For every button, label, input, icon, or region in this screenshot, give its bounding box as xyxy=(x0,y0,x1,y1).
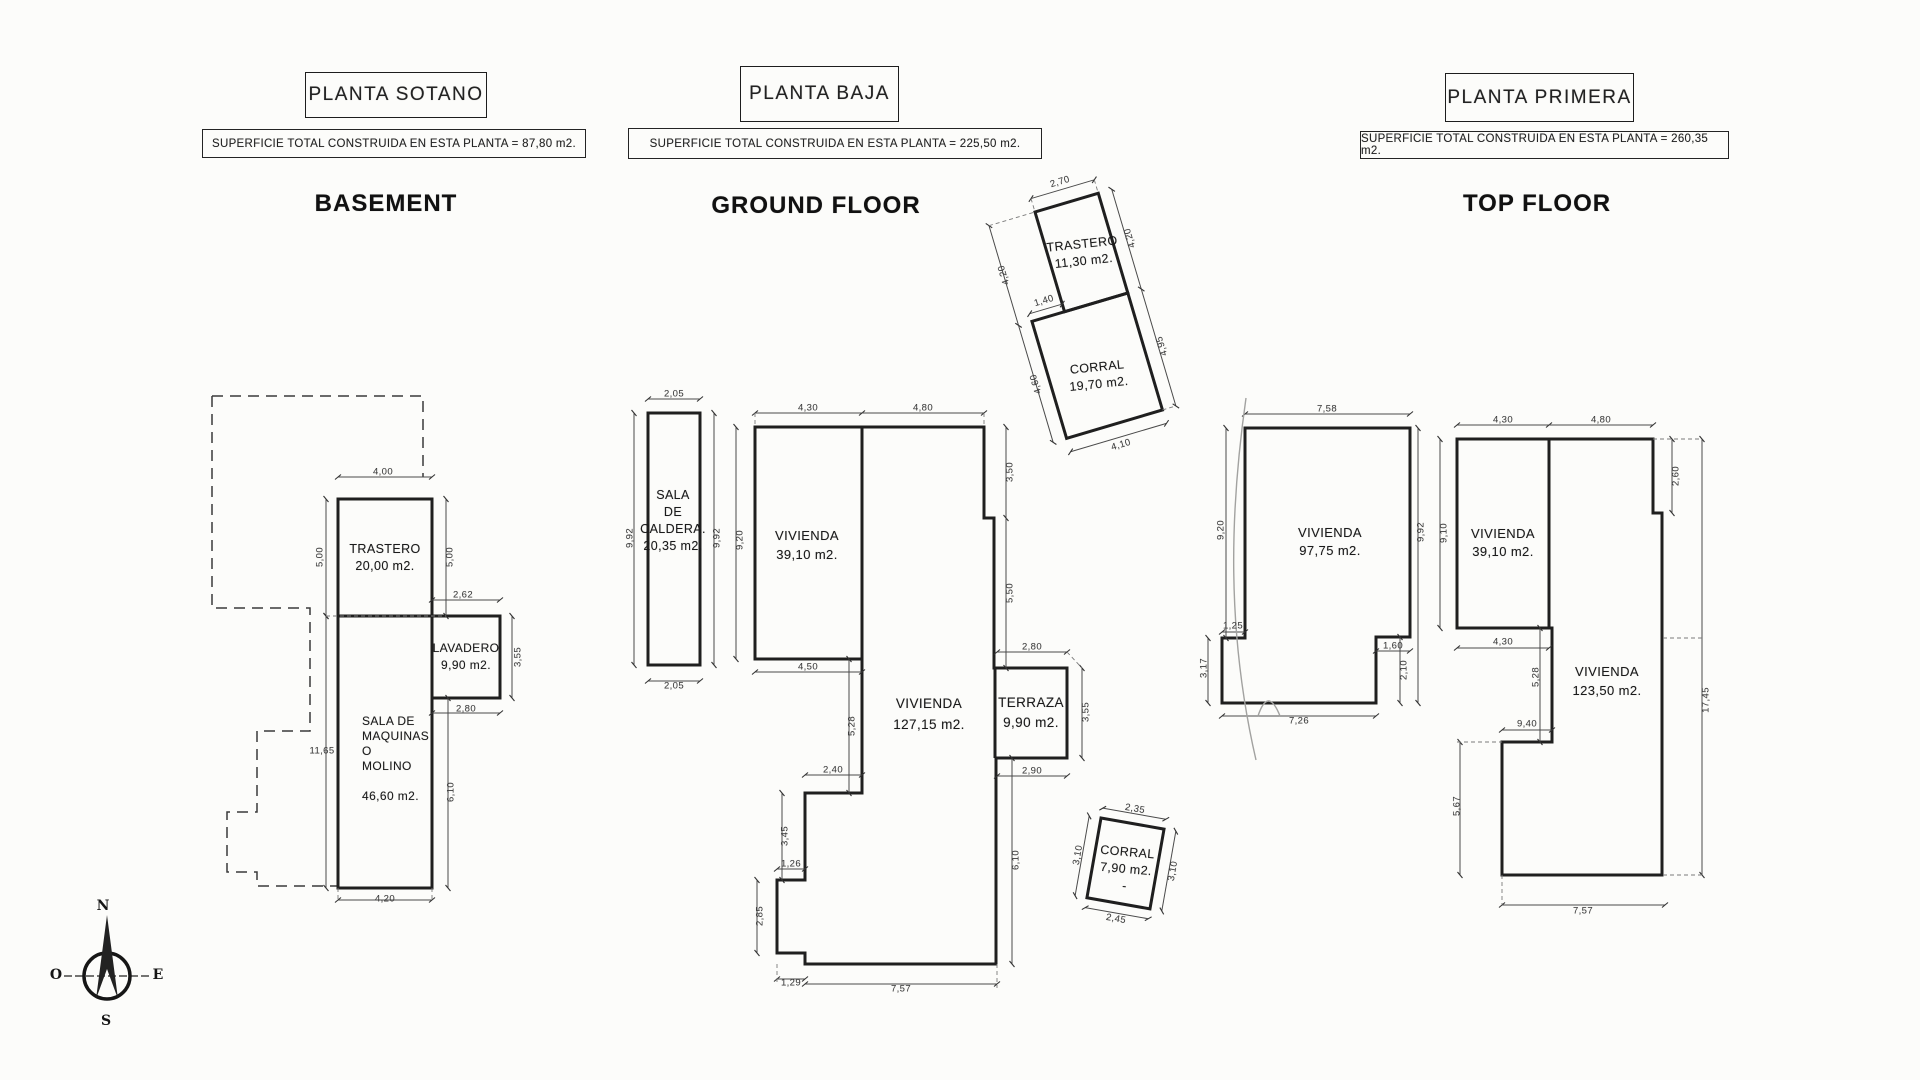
room-label-line: 20,00 m2. xyxy=(349,558,420,575)
room-label-line: MOLINO xyxy=(362,759,429,774)
dimension-label: 5,28 xyxy=(847,716,858,736)
room-label: VIVIENDA97,75 m2. xyxy=(1298,524,1362,560)
plan-title-sotano: PLANTA SOTANO xyxy=(305,72,487,118)
room-label: CORRAL19,70 m2. xyxy=(1067,356,1129,396)
dimension-label: 9,92 xyxy=(1416,522,1427,542)
room-label-line: 46,60 m2. xyxy=(362,789,429,804)
plan-superficie-primera-text: SUPERFICIE TOTAL CONSTRUIDA EN ESTA PLAN… xyxy=(1361,133,1728,157)
dimension-label: 7,57 xyxy=(891,984,911,995)
room-label-line: 39,10 m2. xyxy=(1471,543,1535,561)
dimension-label: 1,25 xyxy=(1223,621,1243,632)
plan-title-baja: PLANTA BAJA xyxy=(740,66,899,122)
room-label-line: 9,90 m2. xyxy=(998,713,1064,733)
room-label-line: 20,35 m2. xyxy=(640,538,706,555)
room-label-line: SALA DE xyxy=(362,714,429,729)
compass-west-label: O xyxy=(50,967,62,983)
room-label: LAVADERO9,90 m2. xyxy=(433,640,500,674)
dimension-label: 2,05 xyxy=(664,389,684,400)
floor-plan-sheet: PLANTA SOTANO SUPERFICIE TOTAL CONSTRUID… xyxy=(0,0,1920,1080)
dimension-label: 3,55 xyxy=(1081,702,1092,722)
dimension-label: 1,29 xyxy=(781,978,801,989)
dimension-label: 4,50 xyxy=(798,662,818,673)
room-label-line: 127,15 m2. xyxy=(893,714,965,735)
dimension-label: 1,26 xyxy=(781,859,801,870)
dimension-label: 4,20 xyxy=(375,894,395,905)
room-label-line: 9,90 m2. xyxy=(433,657,500,674)
room-label: VIVIENDA39,10 m2. xyxy=(1471,525,1535,561)
plan-superficie-baja-text: SUPERFICIE TOTAL CONSTRUIDA EN ESTA PLAN… xyxy=(650,138,1021,150)
room-label: VIVIENDA127,15 m2. xyxy=(893,693,965,735)
dimension-label: 7,57 xyxy=(1573,906,1593,917)
dimension-label: 9,92 xyxy=(712,528,723,548)
dimension-label: 2,85 xyxy=(755,906,766,926)
compass-rose xyxy=(64,915,152,999)
dimension-label: 2,90 xyxy=(1022,766,1042,777)
room-label-line: TERRAZA xyxy=(998,693,1064,713)
dimension-label: 4,30 xyxy=(798,403,818,414)
dimension-label: 6,10 xyxy=(1011,850,1022,870)
dimension-label: 3,45 xyxy=(780,826,791,846)
room-label-line: 97,75 m2. xyxy=(1298,542,1362,560)
dimension-label: 2,05 xyxy=(664,681,684,692)
dimension-label: 2,80 xyxy=(1022,642,1042,653)
top-floor-plan xyxy=(1208,398,1702,905)
dimension-label: 9,20 xyxy=(1216,520,1227,540)
heading-ground-floor: GROUND FLOOR xyxy=(711,192,920,220)
dimension-label: 2,10 xyxy=(1399,660,1410,680)
compass-north-label: N xyxy=(97,898,110,914)
room-label: TRASTERO20,00 m2. xyxy=(349,541,420,575)
plan-superficie-baja: SUPERFICIE TOTAL CONSTRUIDA EN ESTA PLAN… xyxy=(628,128,1042,159)
room-label: TERRAZA9,90 m2. xyxy=(998,693,1064,733)
dimension-label: 5,00 xyxy=(315,547,326,567)
room-label: VIVIENDA123,50 m2. xyxy=(1572,662,1641,700)
room-label: VIVIENDA39,10 m2. xyxy=(775,526,839,564)
room-label-line: O xyxy=(362,744,429,759)
dimension-label: 7,58 xyxy=(1317,404,1337,415)
plan-title-primera-text: PLANTA PRIMERA xyxy=(1447,87,1631,109)
dimension-label: 17,45 xyxy=(1701,687,1712,713)
plan-title-baja-text: PLANTA BAJA xyxy=(749,83,890,105)
dimension-label: 4,00 xyxy=(373,467,393,478)
dimension-label: 2,80 xyxy=(456,704,476,715)
room-label-line: MAQUINAS xyxy=(362,729,429,744)
dimension-label: 5,67 xyxy=(1452,796,1463,816)
dimension-label: 2,60 xyxy=(1671,466,1682,486)
heading-top-floor: TOP FLOOR xyxy=(1463,190,1611,218)
room-label-line: VIVIENDA xyxy=(1572,662,1641,681)
plan-title-sotano-text: PLANTA SOTANO xyxy=(308,84,483,106)
dimension-label: 3,50 xyxy=(1005,462,1016,482)
dimension-label: 4,80 xyxy=(1591,415,1611,426)
dimension-label: 1,60 xyxy=(1383,641,1403,652)
plan-superficie-sotano: SUPERFICIE TOTAL CONSTRUIDA EN ESTA PLAN… xyxy=(202,129,586,158)
room-label-line: 123,50 m2. xyxy=(1572,681,1641,700)
dimension-label: 7,26 xyxy=(1289,716,1309,727)
room-label-line: VIVIENDA xyxy=(775,526,839,545)
plan-title-primera: PLANTA PRIMERA xyxy=(1445,73,1634,122)
compass-east-label: E xyxy=(153,967,164,983)
dimension-label: 5,00 xyxy=(445,547,456,567)
dimension-label: 6,10 xyxy=(446,782,457,802)
dimension-label: 5,50 xyxy=(1005,583,1016,603)
room-label-line: VIVIENDA xyxy=(1298,524,1362,542)
dimension-label: 2,40 xyxy=(823,765,843,776)
room-label-line: VIVIENDA xyxy=(1471,525,1535,543)
dimension-label: 2,62 xyxy=(453,590,473,601)
room-label: SALADECALDERA.20,35 m2. xyxy=(640,487,706,555)
room-label: CORRAL7,90 m2.- xyxy=(1097,842,1156,898)
compass-south-label: S xyxy=(101,1013,111,1029)
dimension-label: 3,55 xyxy=(513,647,524,667)
floor-plan-drawing xyxy=(0,0,1920,1080)
heading-basement: BASEMENT xyxy=(315,190,458,218)
room-label-line: DE xyxy=(640,504,706,521)
dimension-label: 9,10 xyxy=(1439,523,1450,543)
dimension-label: 9,20 xyxy=(735,530,746,550)
room-label-line: SALA xyxy=(640,487,706,504)
room-label-line: LAVADERO xyxy=(433,640,500,657)
dimension-label: 11,65 xyxy=(309,746,334,757)
dimension-label: 5,28 xyxy=(1531,667,1542,687)
plan-superficie-primera: SUPERFICIE TOTAL CONSTRUIDA EN ESTA PLAN… xyxy=(1360,131,1729,159)
dimension-label: 3,17 xyxy=(1199,658,1210,678)
room-label-line: TRASTERO xyxy=(349,541,420,558)
dimension-label: 9,92 xyxy=(625,528,636,548)
dimension-label: 4,30 xyxy=(1493,637,1513,648)
room-label-line xyxy=(362,774,429,789)
room-label-line: VIVIENDA xyxy=(893,693,965,714)
room-label-line: 39,10 m2. xyxy=(775,545,839,564)
dimension-label: 4,80 xyxy=(913,403,933,414)
plan-superficie-sotano-text: SUPERFICIE TOTAL CONSTRUIDA EN ESTA PLAN… xyxy=(212,138,576,150)
dimension-label: 9,40 xyxy=(1517,719,1537,730)
dimension-label: 4,30 xyxy=(1493,415,1513,426)
room-label: SALA DEMAQUINASOMOLINO 46,60 m2. xyxy=(362,714,429,804)
room-label-line: CALDERA. xyxy=(640,521,706,538)
